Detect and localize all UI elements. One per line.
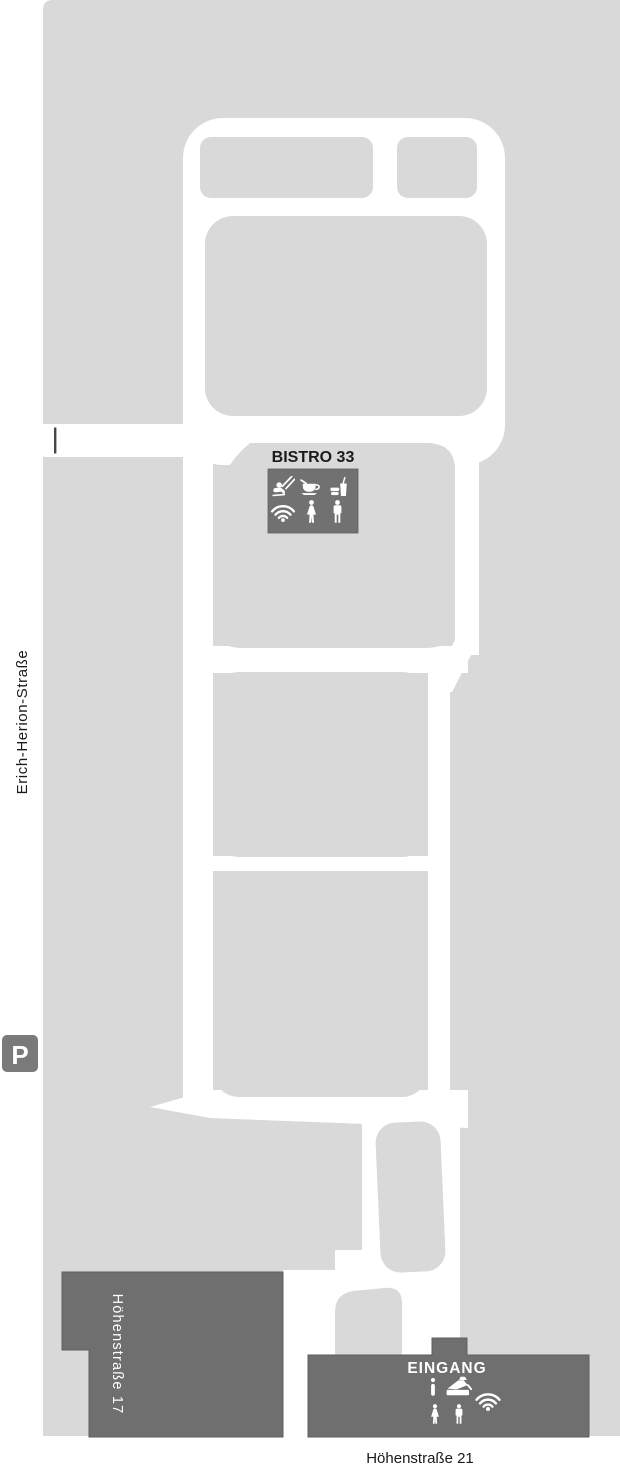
plot-lower [213, 871, 428, 1097]
walkway-right-aisle-upper [455, 430, 479, 655]
plot-middle [213, 672, 428, 857]
plot-top-right [397, 137, 477, 198]
street-access-marker [54, 428, 56, 454]
plot-large-upper [205, 216, 487, 416]
walkway-right-aisle-lower [428, 672, 450, 1100]
info-icon [431, 1378, 435, 1396]
walkway-left-aisle [183, 430, 213, 1110]
plot-narrow-island [375, 1121, 446, 1274]
street-label-erich-herion: Erich-Herion-Straße [14, 650, 31, 795]
entrance-label: EINGANG [407, 1360, 486, 1377]
plot-entrance-blob [335, 1288, 402, 1356]
parking-sign: P [2, 1035, 38, 1072]
walkway-cross-aisle-2 [188, 856, 450, 871]
building-label-hoehenstrasse-17: Höhenstraße 17 [109, 1294, 125, 1415]
walkway-cross-aisle-1 [188, 646, 468, 673]
plot-top-left [200, 137, 373, 198]
bistro-title: BISTRO 33 [272, 449, 355, 466]
street-label-hoehenstrasse-21: Höhenstraße 21 [366, 1450, 474, 1467]
parking-icon: P [11, 1040, 28, 1070]
site-map: P BISTRO 33 EINGANG Erich-Herion-Straße … [0, 0, 620, 1470]
building-hoehenstrasse-17 [62, 1272, 283, 1437]
